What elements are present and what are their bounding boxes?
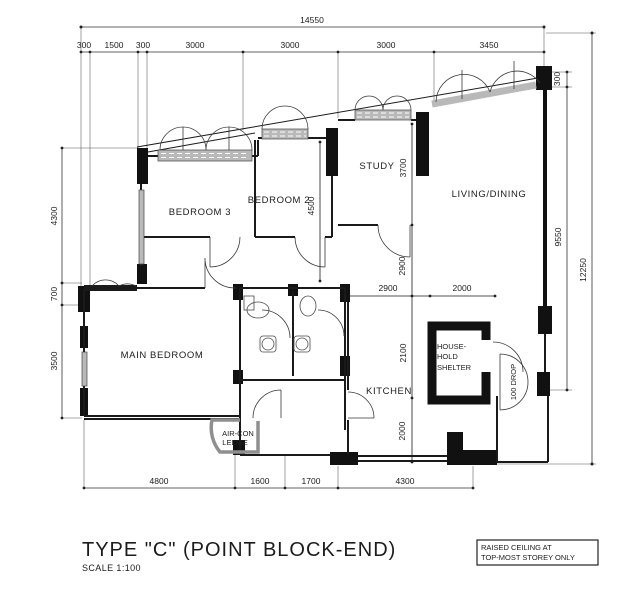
bedroom2-door: [295, 237, 325, 267]
room-label-shelter-2: HOLD: [437, 352, 458, 361]
shelter-door-gap: [480, 340, 493, 372]
dim-left-1: 700: [49, 287, 59, 301]
bedroom3-window-arcs: [160, 127, 252, 150]
bedroom3-side-window: [139, 190, 144, 264]
bedroom3-door: [210, 237, 240, 267]
dim-bottom-2: 1700: [302, 476, 321, 486]
dim-bottom-3: 4300: [396, 476, 415, 486]
room-label-shelter-1: HOUSE-: [437, 342, 467, 351]
dim-right-outer: 12250: [578, 258, 588, 282]
note-line2: TOP-MOST STOREY ONLY: [481, 553, 575, 562]
dim-hall-depth: 2900: [397, 256, 407, 275]
dim-top-seg-3: 3000: [186, 40, 205, 50]
dim-top-seg-2: 300: [136, 40, 150, 50]
dim-right-step: 300: [552, 72, 562, 86]
column: [137, 264, 147, 284]
dim-shelter-width: 2000: [453, 283, 472, 293]
note-line1: RAISED CEILING AT: [481, 543, 552, 552]
entry-walls: [497, 396, 548, 462]
toilet-bowl-2: [300, 296, 316, 316]
room-label-shelter-3: SHELTER: [437, 363, 472, 372]
dim-top-seg-5: 3000: [377, 40, 396, 50]
study-window-sill: [355, 110, 411, 120]
column: [538, 306, 552, 334]
basin-1: [262, 338, 274, 350]
kitchen-bottom-window-wall: [358, 456, 447, 461]
store-door: [253, 390, 281, 418]
bedroom3-window-sill: [158, 150, 252, 161]
plan-title: TYPE "C" (POINT BLOCK-END): [82, 539, 396, 561]
store-walls: [240, 380, 345, 455]
room-label-bedroom2: BEDROOM 2: [248, 195, 310, 206]
floor-plan-drawing: 14550 300 1500 300 3000 3000 3000 3450 3…: [0, 0, 624, 600]
dim-top-seg-0: 300: [77, 40, 91, 50]
windows: [82, 61, 540, 386]
column: [326, 128, 338, 176]
title-block: TYPE "C" (POINT BLOCK-END) SCALE 1:100 R…: [82, 539, 598, 573]
dim-top-seg-4: 3000: [281, 40, 300, 50]
column: [330, 452, 358, 465]
plan-scale: SCALE 1:100: [82, 563, 141, 573]
column: [416, 112, 429, 176]
dim-left-0: 4300: [49, 206, 59, 225]
study-door: [378, 225, 410, 257]
column: [233, 370, 243, 384]
dim-top-total: 14550: [300, 15, 324, 25]
column: [233, 284, 243, 300]
dim-bottom-1: 1600: [251, 476, 270, 486]
living-window-sill: [432, 85, 536, 104]
room-label-aircon-2: LEDGE: [222, 438, 247, 447]
room-label-kitchen: KITCHEN: [366, 386, 412, 397]
dim-left-2: 3500: [49, 351, 59, 370]
room-label-study: STUDY: [359, 161, 394, 172]
shelter-door: [493, 342, 523, 372]
basin-2: [296, 338, 308, 350]
dim-study-depth: 3700: [398, 158, 408, 177]
dim-top-seg-1: 1500: [105, 40, 124, 50]
dim-kitchen-depth: 2100: [398, 343, 408, 362]
dim-top-seg-6: 3450: [480, 40, 499, 50]
dim-yard-depth: 2000: [397, 421, 407, 440]
dim-bottom-0: 4800: [150, 476, 169, 486]
room-label-main-bedroom: MAIN BEDROOM: [121, 350, 204, 361]
floor-plan-page: 14550 300 1500 300 3000 3000 3000 3450 3…: [0, 0, 624, 600]
bathroom2-door: [318, 310, 344, 336]
room-label-living-dining: LIVING/DINING: [452, 189, 527, 200]
fixtures: [244, 296, 316, 352]
label-100-drop: 100 DROP: [509, 364, 518, 400]
bedroom2-window-sill: [262, 129, 308, 139]
room-label-bedroom3: BEDROOM 3: [169, 207, 231, 218]
main-bedroom-door: [205, 258, 235, 288]
dim-kitchen-width: 2900: [379, 283, 398, 293]
bedroom2-window-arc: [262, 106, 308, 129]
room-label-aircon-1: AIR-CON: [222, 429, 254, 438]
bathroom1-door: [262, 310, 290, 338]
main-bedroom-window: [82, 352, 87, 386]
column: [447, 450, 497, 465]
column: [537, 372, 550, 396]
column: [536, 66, 552, 90]
dim-right-inner: 9550: [553, 227, 563, 246]
column: [137, 148, 148, 184]
